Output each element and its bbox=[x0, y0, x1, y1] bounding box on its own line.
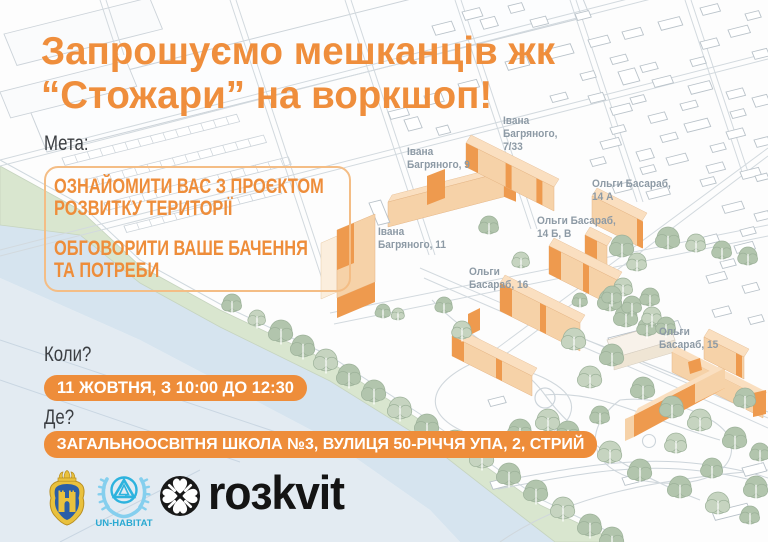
svg-text:UN-HABITAT: UN-HABITAT bbox=[95, 518, 152, 529]
